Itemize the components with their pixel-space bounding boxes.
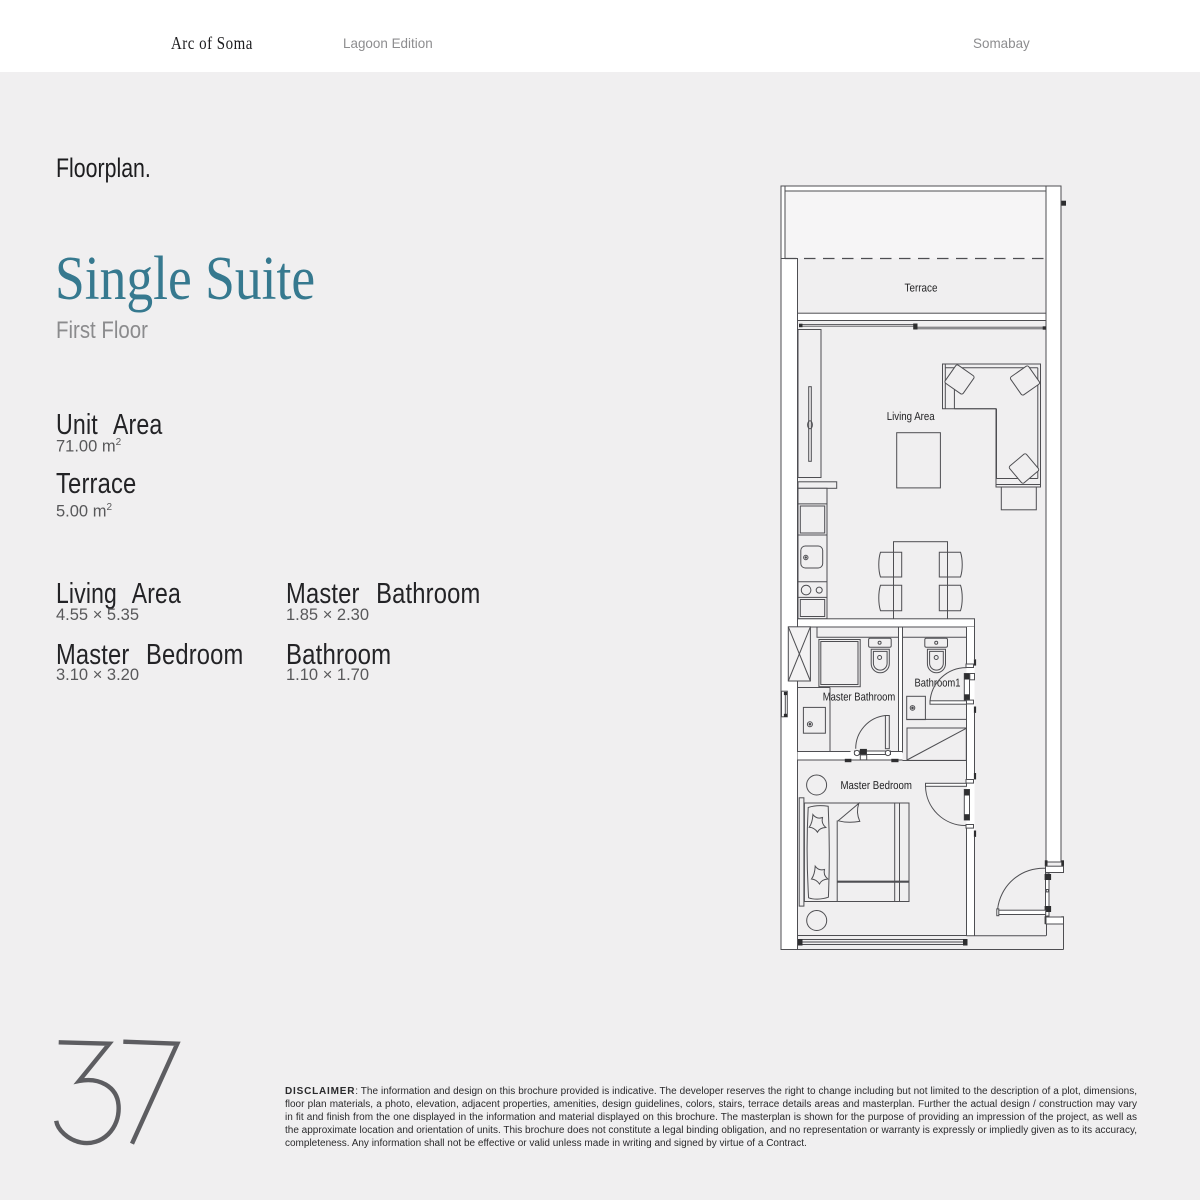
svg-text:Master Bathroom: Master Bathroom bbox=[823, 691, 896, 703]
svg-text:Living Area: Living Area bbox=[887, 411, 936, 423]
svg-text:Terrace: Terrace bbox=[905, 283, 938, 295]
svg-text:Master Bedroom: Master Bedroom bbox=[841, 780, 913, 792]
svg-text:Bathroom1: Bathroom1 bbox=[915, 678, 961, 690]
